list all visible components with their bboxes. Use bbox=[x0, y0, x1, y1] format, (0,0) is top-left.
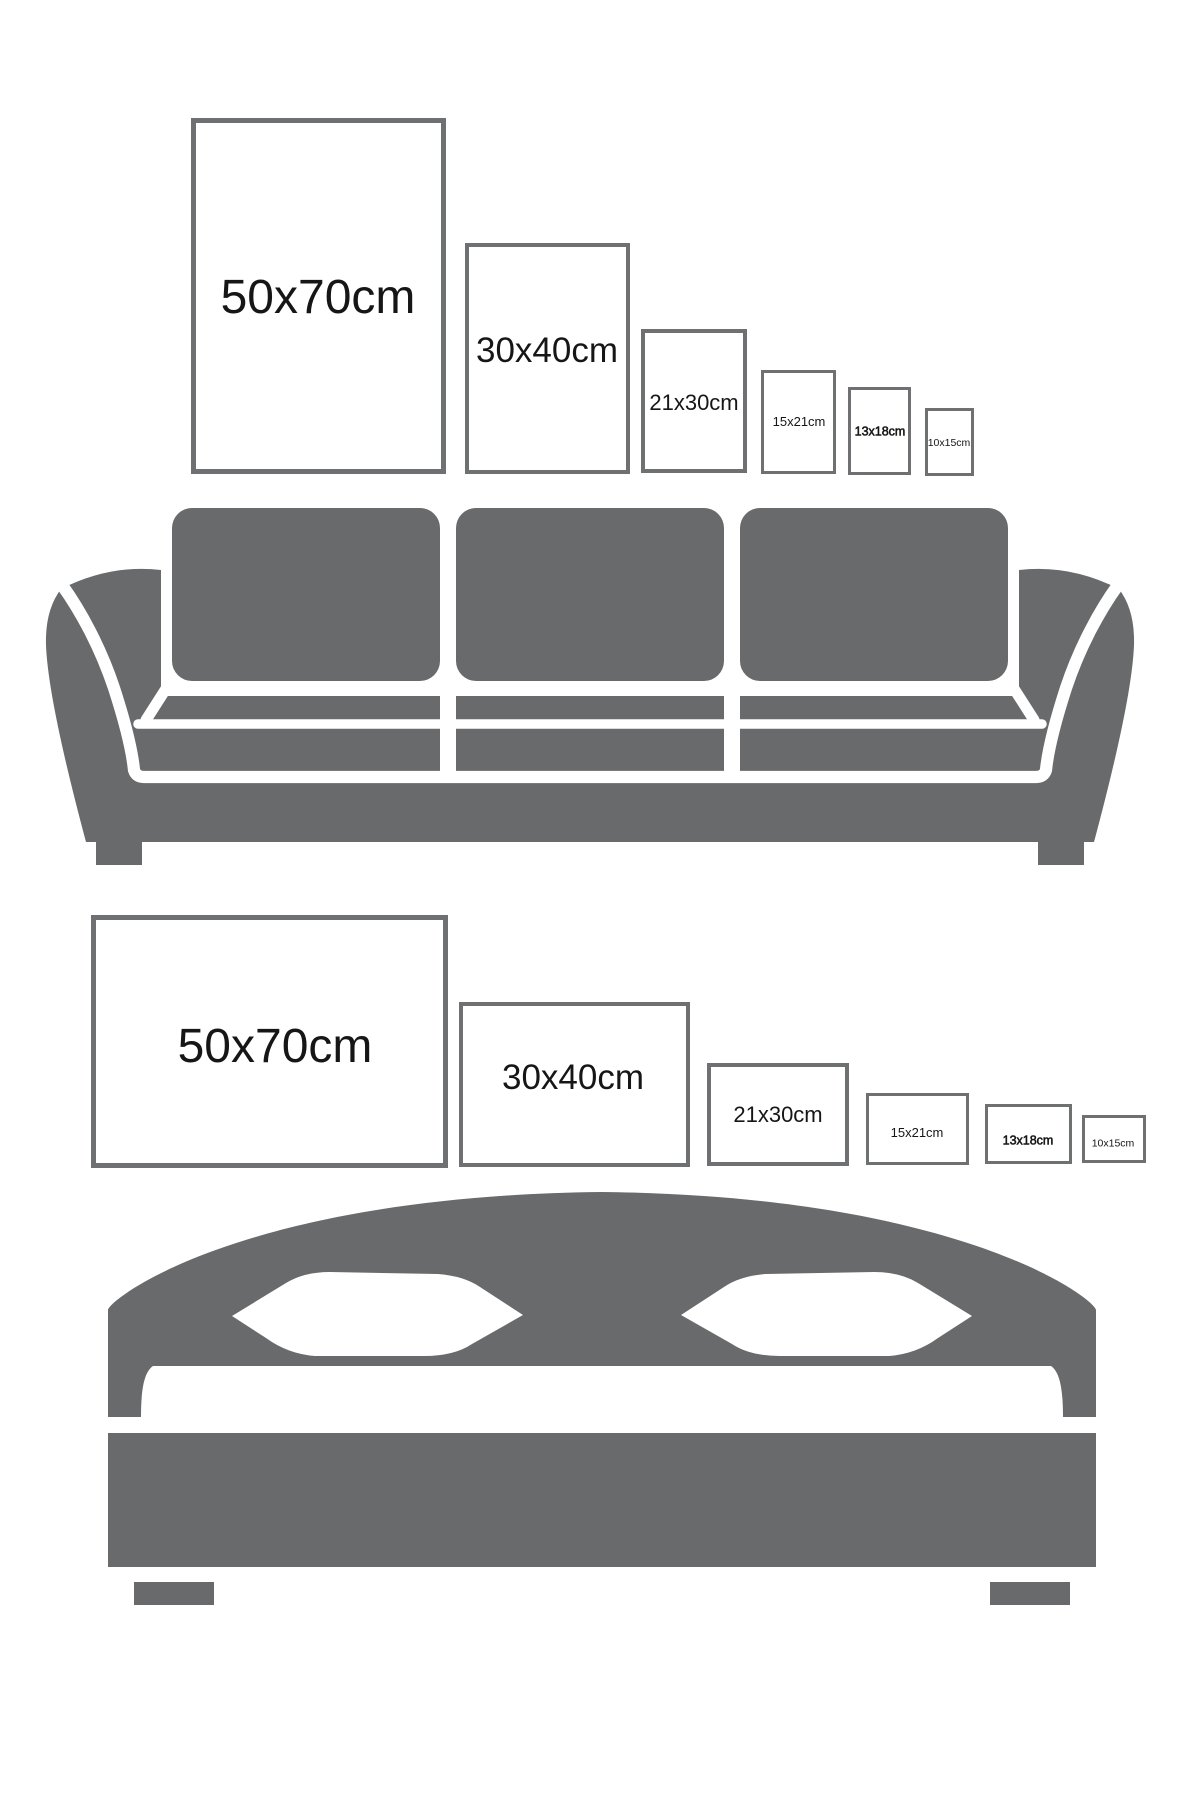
svg-text:10x15cm: 10x15cm bbox=[1092, 1138, 1135, 1150]
svg-text:21x30cm: 21x30cm bbox=[649, 390, 738, 415]
svg-text:30x40cm: 30x40cm bbox=[502, 1058, 644, 1097]
svg-text:15x21cm: 15x21cm bbox=[891, 1125, 944, 1140]
svg-text:50x70cm: 50x70cm bbox=[221, 271, 416, 324]
svg-text:10x15cm: 10x15cm bbox=[928, 437, 971, 449]
svg-text:13x18cm: 13x18cm bbox=[855, 425, 906, 439]
svg-text:15x21cm: 15x21cm bbox=[773, 414, 826, 429]
svg-text:21x30cm: 21x30cm bbox=[733, 1102, 822, 1127]
svg-text:30x40cm: 30x40cm bbox=[476, 331, 618, 370]
svg-text:50x70cm: 50x70cm bbox=[178, 1020, 373, 1073]
svg-text:13x18cm: 13x18cm bbox=[1003, 1134, 1054, 1148]
